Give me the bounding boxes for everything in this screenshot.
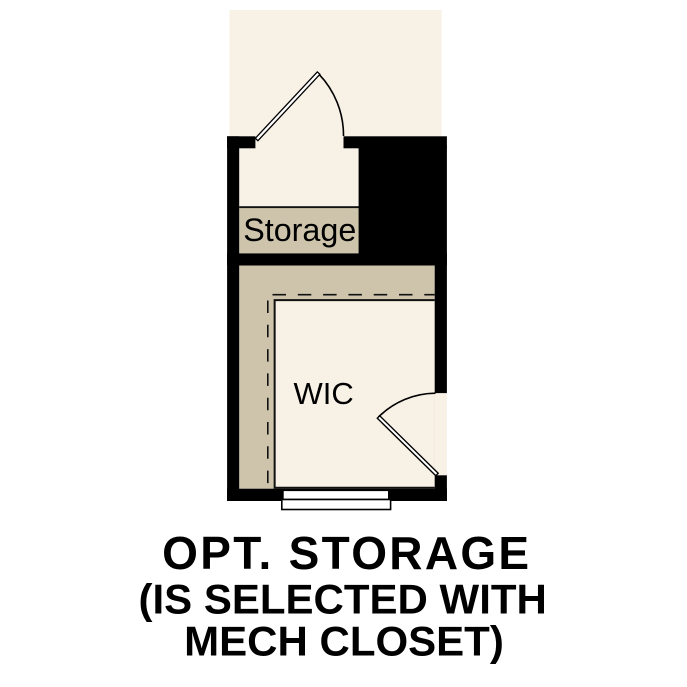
svg-text:(IS SELECTED WITH: (IS SELECTED WITH	[139, 576, 547, 623]
svg-text:MECH CLOSET): MECH CLOSET)	[184, 618, 504, 665]
svg-text:OPT. STORAGE: OPT. STORAGE	[162, 527, 531, 579]
svg-text:Storage: Storage	[243, 212, 356, 248]
svg-text:WIC: WIC	[294, 376, 354, 411]
